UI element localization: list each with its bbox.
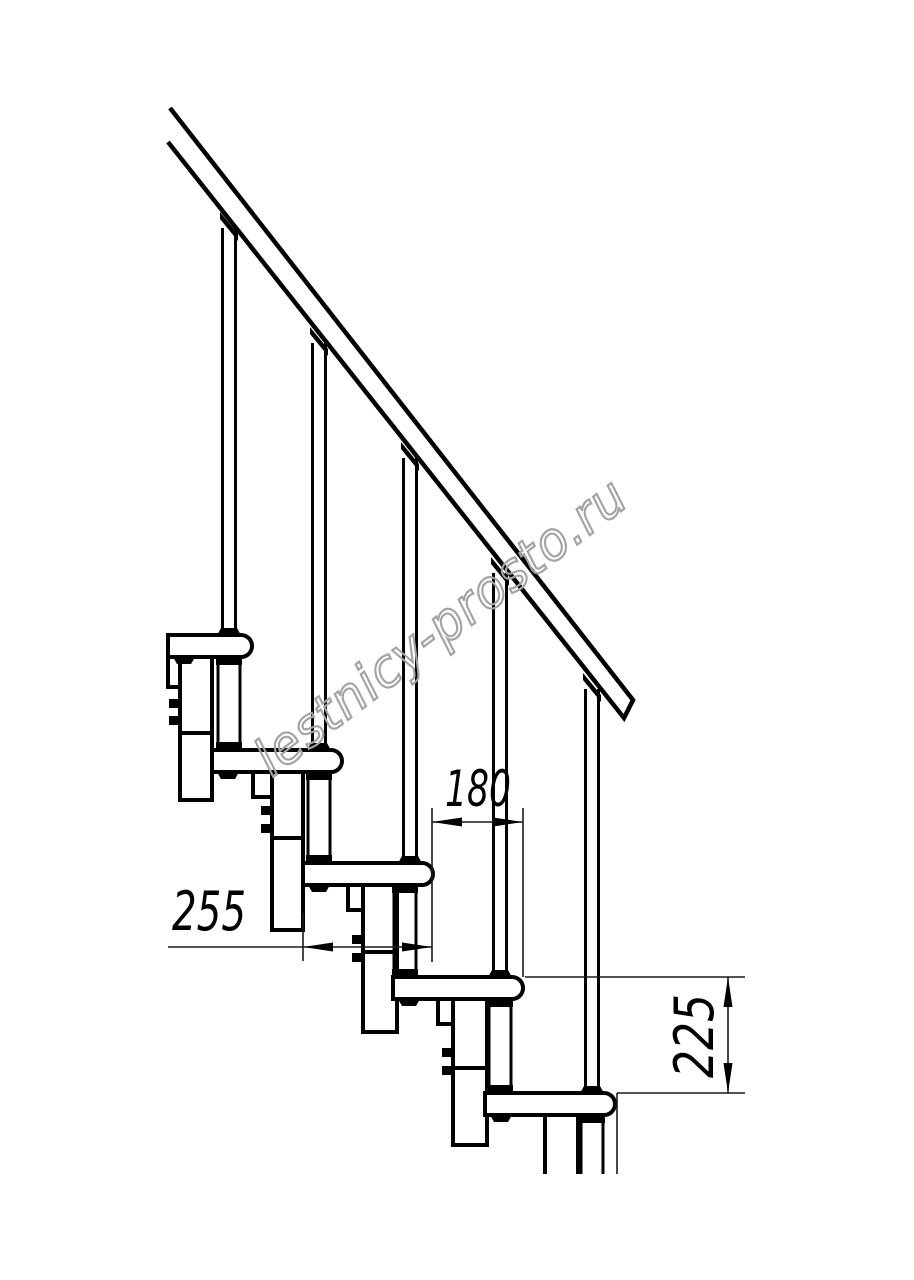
baluster-tube (586, 689, 599, 1093)
dimension-step-rise-225: 225 (525, 977, 745, 1174)
dimension-label-tread-depth: 255 (172, 880, 246, 943)
tread-plate (393, 977, 523, 999)
module-body (363, 885, 397, 1032)
stringer-module-2 (253, 772, 303, 930)
support-post-5 (579, 1115, 605, 1174)
support-post-4 (487, 999, 513, 1093)
nut-icon (308, 885, 330, 892)
baluster-foot (487, 970, 513, 979)
bolt-icon (352, 935, 364, 944)
treads (168, 635, 615, 1122)
module-notch (438, 999, 453, 1024)
baluster-foot (579, 1086, 605, 1095)
tread-plate (168, 635, 252, 657)
module-body (545, 1115, 578, 1174)
bolt-icon (169, 716, 181, 725)
baluster-tube (223, 228, 236, 635)
support-post-2 (306, 772, 332, 863)
baluster-foot (397, 856, 423, 865)
bolt-icon (442, 1066, 454, 1075)
nut-icon (398, 999, 420, 1006)
baluster-foot (216, 628, 242, 637)
module-body (272, 772, 303, 930)
baluster-5 (579, 673, 605, 1095)
tread-plate (485, 1093, 615, 1115)
post-tube (489, 999, 511, 1093)
module-notch (348, 885, 363, 910)
baluster-1 (216, 212, 242, 637)
post-tube (308, 772, 330, 863)
bolt-icon (261, 824, 273, 833)
module-body (453, 999, 487, 1145)
arrow-left-icon (303, 943, 333, 952)
module-body (180, 657, 212, 800)
arrow-left-icon (432, 818, 462, 827)
bolt-icon (169, 699, 181, 708)
tread-plate (303, 863, 433, 885)
stringer-module-3 (348, 885, 397, 1032)
support-post-1 (216, 657, 242, 750)
stringer-module-5 (545, 1115, 578, 1174)
bolt-icon (352, 953, 364, 962)
stringer-module-4 (438, 999, 487, 1145)
bolt-icon (261, 806, 273, 815)
dimension-label-step-rise: 225 (663, 994, 726, 1078)
stringer-module-1 (168, 657, 212, 800)
bolt-icon (442, 1048, 454, 1057)
dimension-step-run-180: 180 (432, 760, 523, 977)
staircase-technical-drawing: 180 255 225 lestnicy-prosto.ru (0, 0, 914, 1280)
nut-icon (490, 1115, 512, 1122)
drawing-canvas: 180 255 225 lestnicy-prosto.ru (0, 0, 914, 1280)
post-tube (581, 1115, 603, 1174)
post-tube (218, 657, 240, 750)
nut-icon (217, 772, 239, 779)
watermark: lestnicy-prosto.ru (243, 466, 639, 788)
dimension-label-step-run: 180 (445, 760, 511, 818)
